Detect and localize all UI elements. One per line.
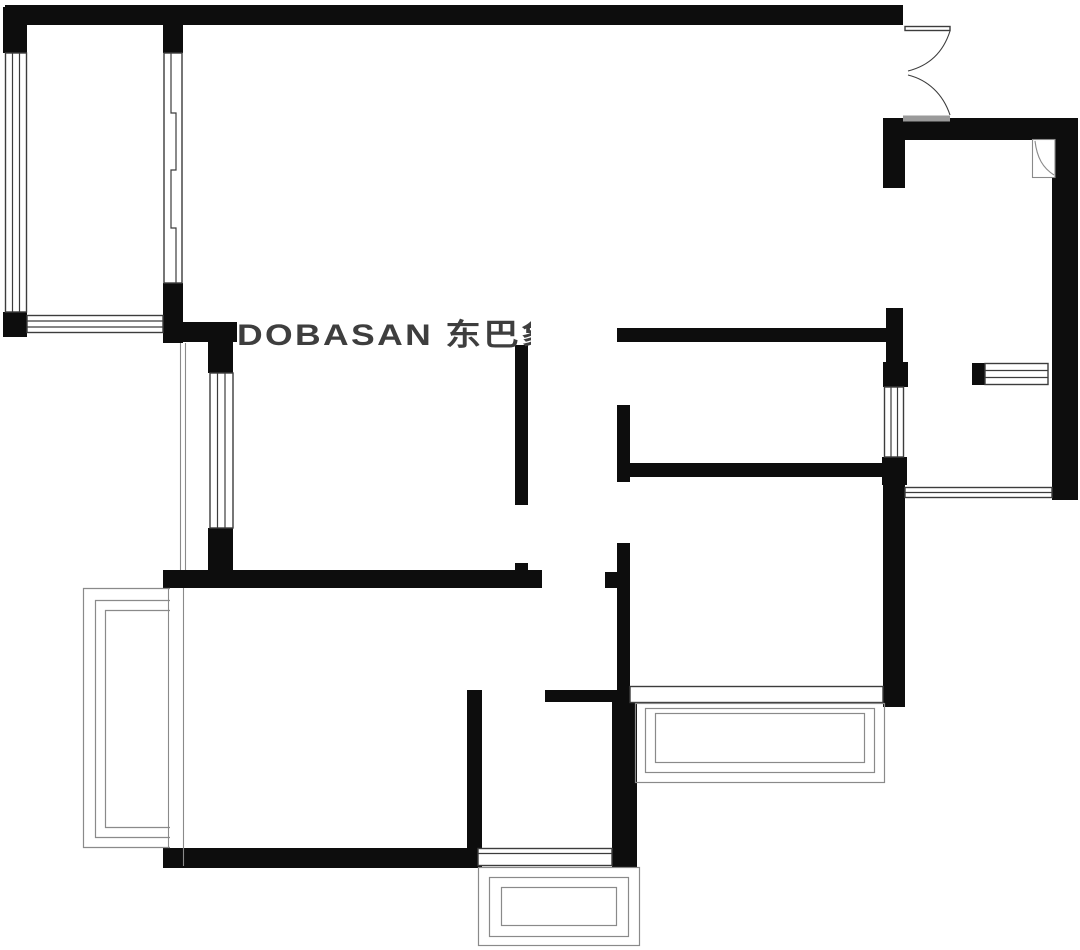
wall-bedroom-bottom: [163, 570, 542, 588]
wall-kitchen-left-mid: [886, 308, 903, 365]
bay-window-bottom-right: [636, 704, 885, 783]
entry-double-door: [903, 27, 950, 122]
block-kitchen-window-end: [972, 363, 985, 385]
floor-plan-svg: DOBASAN 东巴象: [0, 0, 1080, 950]
window-balcony-bottom: [27, 316, 163, 333]
wall-bedroom2-top: [627, 463, 883, 477]
wall-corner-left: [3, 312, 27, 337]
window-balcony-left: [6, 53, 27, 312]
column-balcony-bottom: [163, 283, 183, 343]
bay-window-bottom-center: [479, 868, 640, 946]
wall-right-inner: [883, 485, 905, 707]
window-kitchen-inner: [985, 364, 1048, 385]
door-swing-arc-lower: [908, 75, 950, 115]
wall-corner-top-left: [3, 7, 27, 53]
wall-corridor-lower: [617, 543, 630, 690]
window-kitchen-pass: [885, 387, 904, 457]
bay-window-left: [84, 588, 184, 866]
wall-door-nub: [605, 572, 618, 588]
wall-bath-top: [545, 690, 620, 702]
block-kitchen-left-lower: [882, 457, 907, 485]
column-balcony-top: [163, 25, 183, 53]
door-leaf-line: [905, 27, 950, 31]
wall-top: [5, 5, 903, 25]
sliding-door-balcony: [164, 53, 182, 283]
column-bedroom-window-top: [208, 322, 233, 373]
watermark: DOBASAN 东巴象: [237, 318, 559, 352]
floor-plan-page: DOBASAN 东巴象: [0, 0, 1080, 950]
window-kitchen-bottom: [905, 488, 1052, 498]
block-kitchen-left: [883, 362, 908, 387]
wall-bottom-left: [163, 848, 482, 868]
wall-bath-right: [612, 690, 637, 868]
window-bedroom2-balcony: [630, 687, 883, 703]
wall-bedroom-right: [515, 345, 528, 505]
bay-windows: [84, 588, 885, 946]
door-sill: [903, 116, 950, 122]
column-bedroom-window-bottom: [208, 528, 233, 573]
wall-middle-top: [617, 328, 890, 342]
bedroom-left-edge-lines: [181, 343, 186, 570]
flue-duct: [1033, 140, 1056, 178]
wall-bath-left: [467, 690, 482, 868]
watermark-text: DOBASAN 东巴象: [237, 318, 559, 352]
window-bedroom-left: [210, 373, 233, 528]
window-bath-bottom: [478, 849, 612, 866]
interior-walls: [163, 25, 985, 868]
wall-right: [1052, 140, 1078, 500]
door-swing-arc-upper: [908, 31, 950, 71]
wall-kitchen-left-upper: [883, 140, 905, 188]
